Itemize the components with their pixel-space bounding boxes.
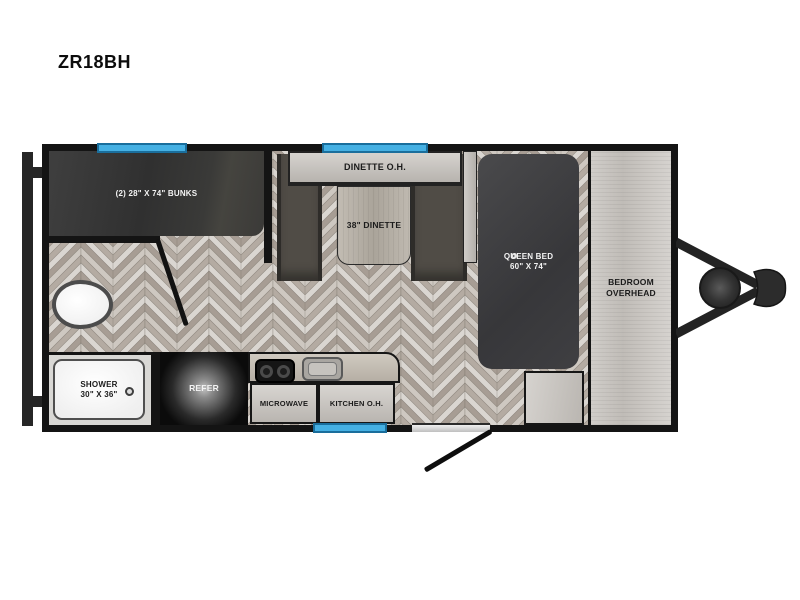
entry-door-swing xyxy=(424,429,493,472)
dinette-table-label: 38" DINETTE xyxy=(347,220,401,231)
kitchen-overhead-label: KITCHEN O.H. xyxy=(330,399,383,408)
dinette-table: 38" DINETTE xyxy=(337,186,411,265)
trailer-body-outline: (2) 28" X 74" BUNKS 38" DINETTE DINETTE … xyxy=(42,144,678,432)
entry-door-opening xyxy=(412,423,490,432)
kitchen-overhead-cabinet: KITCHEN O.H. xyxy=(318,383,395,424)
floorplan-title: ZR18BH xyxy=(58,52,131,73)
shower-stall: SHOWER 30" X 36" xyxy=(49,352,151,425)
sink-icon xyxy=(302,357,343,381)
wardrobe-end-panel xyxy=(463,151,477,263)
bunk-room-wall xyxy=(49,236,160,243)
shower-label-line2: 30" X 36" xyxy=(81,390,118,400)
refer-label: REFER xyxy=(189,383,219,394)
bed-handle-dot xyxy=(511,253,517,259)
sink-basin xyxy=(308,362,337,376)
bedroom-overhead-label-line2: OVERHEAD xyxy=(606,288,656,299)
shower-pan: SHOWER 30" X 36" xyxy=(53,359,145,420)
shower-label-line1: SHOWER xyxy=(80,380,117,390)
bedroom-overhead-label-line1: BEDROOM xyxy=(608,277,654,288)
stove-burner-left xyxy=(260,365,273,378)
refrigerator: REFER xyxy=(160,352,248,425)
stove-burner-right xyxy=(277,365,290,378)
trailer-hitch xyxy=(676,228,791,348)
shower-drain-icon xyxy=(125,387,134,396)
stove-icon xyxy=(255,359,295,383)
dinette-overhead-label: DINETTE O.H. xyxy=(344,162,406,173)
window-kitchen xyxy=(313,423,387,433)
bedroom-overhead-cabinet: BEDROOM OVERHEAD xyxy=(588,151,671,425)
bed-foot-cabinet xyxy=(524,371,584,425)
bunk-dinette-wall xyxy=(264,151,272,263)
window-dinette xyxy=(322,143,428,153)
bunks-label: (2) 28" X 74" BUNKS xyxy=(116,189,198,199)
queen-bed: QUEEN BED 60" X 74" xyxy=(478,154,579,369)
window-bunks xyxy=(97,143,187,153)
microwave-label: MICROWAVE xyxy=(260,399,308,408)
queen-bed-label-line2: 60" X 74" xyxy=(510,262,547,272)
rear-bumper-bar xyxy=(22,152,33,426)
hitch-coupler xyxy=(754,270,786,307)
dinette-overhead-cabinet: DINETTE O.H. xyxy=(288,151,462,186)
propane-tank-icon xyxy=(700,268,740,308)
bathroom-kitchen-wall xyxy=(151,352,160,425)
bunk-beds: (2) 28" X 74" BUNKS xyxy=(49,151,264,236)
microwave-cabinet: MICROWAVE xyxy=(250,383,318,424)
